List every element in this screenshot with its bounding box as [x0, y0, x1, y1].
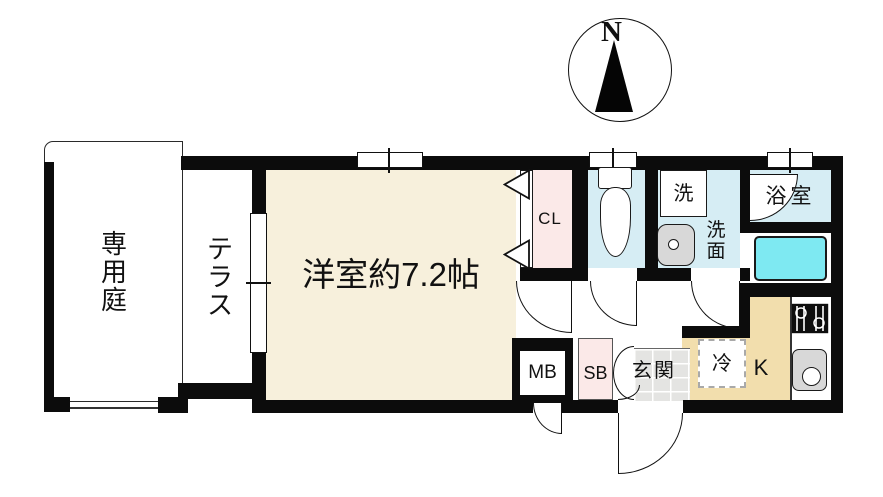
- wall-bath-tub-divider: [740, 222, 832, 233]
- washroom-label: 洗面: [704, 221, 728, 262]
- refrigerator-label: 冷: [712, 353, 732, 375]
- wall-garden-corner-bl: [44, 397, 70, 412]
- closet-label: CL: [528, 208, 572, 230]
- wall-toilet-washroom: [645, 166, 658, 281]
- wall-washroom-bathroom: [740, 156, 750, 222]
- wall-bottom-a: [255, 400, 533, 413]
- meter-box-door-arc: [533, 403, 562, 434]
- kitchen-sink-drain: [802, 367, 821, 386]
- shoe-box-label: SB: [578, 363, 613, 385]
- closet-fold-icon-top: [503, 169, 530, 200]
- kitchen-label: K: [747, 355, 775, 381]
- stove-icon: [791, 303, 829, 334]
- bathtub: [754, 236, 827, 281]
- wall-garden-left: [44, 162, 54, 400]
- refrigerator-box: 冷: [698, 339, 746, 388]
- washing-machine-label: 洗: [674, 183, 694, 205]
- meter-box-label: MB: [520, 362, 565, 384]
- terrace-label: テラス: [205, 235, 235, 319]
- toilet-tank: [598, 167, 632, 189]
- washroom-sink-drain: [668, 239, 679, 250]
- main-room-label: 洋室約7.2帖: [266, 255, 516, 295]
- washroom-door-arc: [691, 281, 740, 329]
- wall-washroom-bottom-right: [740, 268, 750, 281]
- compass-needle-icon: [595, 40, 633, 112]
- wall-closet-toilet: [572, 156, 588, 281]
- toilet-door-arc: [590, 281, 637, 326]
- wall-mainroom-left-lower: [252, 353, 266, 413]
- wall-toilet-bottom: [637, 268, 658, 281]
- wall-closet-bottom: [520, 268, 588, 281]
- wall-mainroom-left-upper: [252, 156, 266, 213]
- window-main-top: [357, 152, 423, 168]
- washing-machine: 洗: [660, 170, 707, 217]
- garden-fence-line: [70, 407, 158, 409]
- bathroom-label: 浴室: [750, 184, 831, 210]
- wall-tubzone-bottom: [740, 283, 843, 297]
- garden-label: 専用庭: [99, 230, 129, 314]
- wall-bottom-c: [683, 400, 843, 413]
- main-room-door-arc: [516, 281, 572, 333]
- window-main-top-tick: [388, 148, 390, 173]
- entrance-door-arc: [618, 413, 683, 474]
- wall-garden-corner-br: [158, 397, 188, 413]
- window-bathroom-top-tick: [789, 148, 791, 173]
- entrance-label: 玄関: [624, 358, 684, 384]
- floor-plan: N: [0, 0, 883, 497]
- wall-washroom-bottom-left: [658, 268, 691, 281]
